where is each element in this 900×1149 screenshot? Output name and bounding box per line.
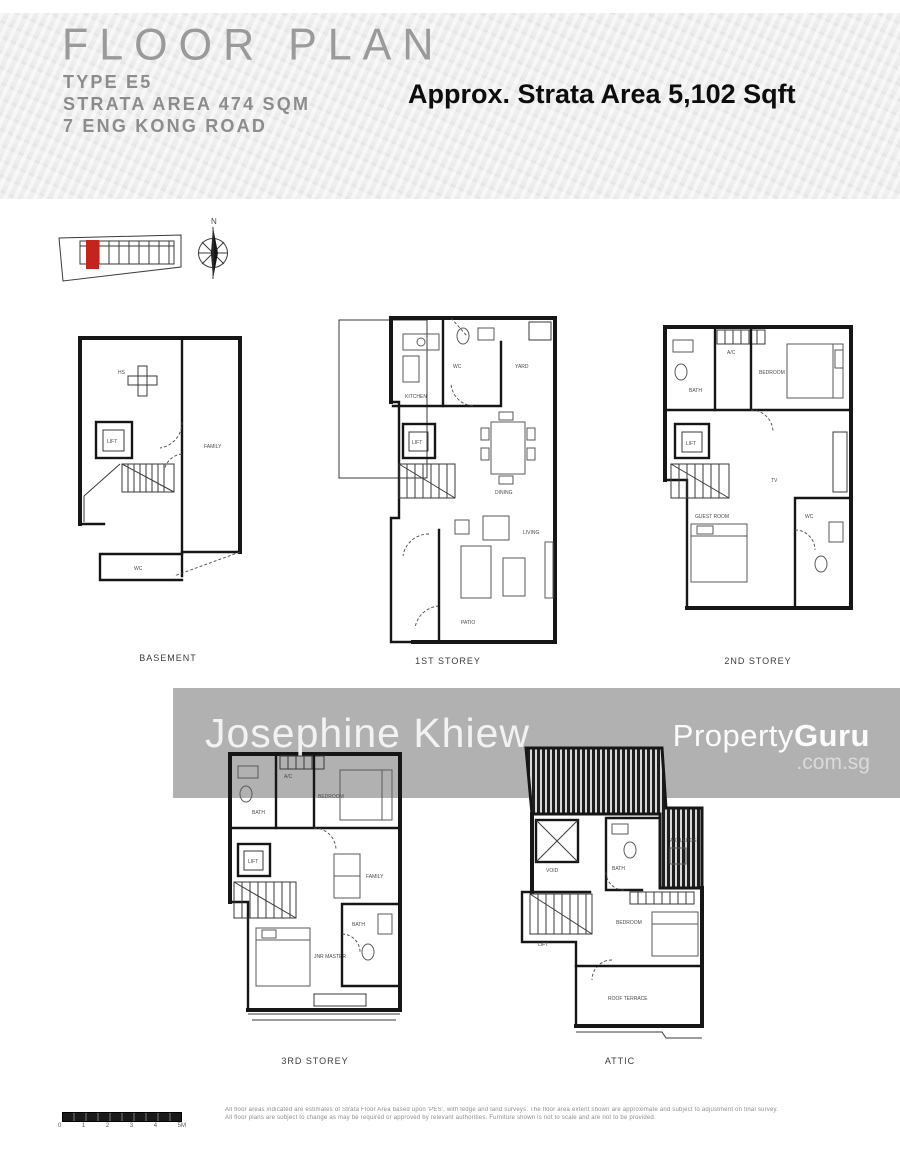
svg-text:LIFT: LIFT (248, 859, 258, 865)
svg-text:A/C: A/C (727, 350, 736, 356)
compass-needle (211, 227, 218, 279)
first-storey-caption: 1ST STOREY (378, 656, 518, 666)
compass-north-label: N (211, 217, 217, 226)
svg-text:FAMILY: FAMILY (366, 874, 384, 880)
second-storey-caption: 2ND STOREY (688, 656, 828, 666)
scale-tick: 0 (58, 1123, 61, 1129)
disclaimer-line-2: All floor plans are subject to change as… (225, 1114, 883, 1122)
svg-text:BEDROOM: BEDROOM (759, 370, 785, 376)
svg-text:LIFT: LIFT (412, 440, 422, 446)
svg-text:TV: TV (771, 478, 778, 484)
site-boundary (59, 235, 181, 281)
svg-text:LIFT: LIFT (107, 439, 117, 445)
page-title: FLOOR PLAN (62, 20, 444, 71)
first-storey-plan: KITCHEN WC YARD LIFT DINING LIVING (333, 306, 561, 650)
svg-text:LIVING: LIVING (523, 530, 540, 536)
svg-text:LIFT: LIFT (686, 441, 696, 447)
brand-watermark: PropertyGuru .com.sg (673, 718, 870, 775)
brand-domain: .com.sg (673, 751, 870, 775)
scale-tick: 2 (106, 1123, 109, 1129)
header-subtitle: TYPE E5 STRATA AREA 474 SQM 7 ENG KONG R… (63, 71, 310, 137)
floor-plan-page: FLOOR PLAN TYPE E5 STRATA AREA 474 SQM 7… (0, 0, 900, 1149)
svg-text:GUEST ROOM: GUEST ROOM (695, 514, 729, 520)
svg-text:KITCHEN: KITCHEN (405, 394, 427, 400)
svg-text:HS: HS (118, 370, 126, 376)
svg-text:LIFT: LIFT (538, 942, 548, 948)
scale-ticks: 0 1 2 3 4 5M (58, 1123, 186, 1129)
svg-text:WC: WC (134, 566, 143, 572)
third-storey-plan: BATH A/C BEDROOM LIFT FAMILY JNR MASTER (222, 742, 410, 1046)
svg-text:BEDROOM: BEDROOM (318, 794, 344, 800)
svg-text:FAMILY: FAMILY (204, 444, 222, 450)
scale-tick: 5M (178, 1123, 186, 1129)
basement-plan: HS LIFT FAMILY WC (70, 326, 254, 644)
brand-bold: Guru (794, 718, 870, 753)
scale-bar (62, 1112, 182, 1122)
highlighted-unit (86, 240, 99, 269)
strata-area-sqm: STRATA AREA 474 SQM (63, 93, 310, 115)
header-band: FLOOR PLAN TYPE E5 STRATA AREA 474 SQM 7… (0, 13, 900, 199)
unit-type: TYPE E5 (63, 71, 310, 93)
third-storey-caption: 3RD STOREY (245, 1056, 385, 1066)
approx-strata-area: Approx. Strata Area 5,102 Sqft (408, 79, 796, 110)
attic-plan: VOID LIFT BATH A/C LEDGE BEDROOM ROOF TE… (512, 742, 716, 1056)
agent-watermark: Josephine Khiew (205, 710, 530, 757)
svg-text:VOID: VOID (546, 868, 559, 874)
svg-text:ROOF TERRACE: ROOF TERRACE (608, 996, 648, 1002)
scale-tick: 1 (82, 1123, 85, 1129)
svg-text:A/C LEDGE: A/C LEDGE (670, 838, 697, 844)
svg-text:A/C: A/C (284, 774, 293, 780)
disclaimer-text: All floor areas indicated are estimates … (225, 1106, 883, 1122)
svg-text:DINING: DINING (495, 490, 513, 496)
svg-text:WC: WC (453, 364, 462, 370)
compass-icon: N (190, 213, 238, 287)
brand-light: Property (673, 718, 794, 753)
svg-text:BATH: BATH (252, 810, 265, 816)
attic-caption: ATTIC (550, 1056, 690, 1066)
svg-text:BATH: BATH (689, 388, 702, 394)
basement-caption: BASEMENT (98, 653, 238, 663)
second-storey-plan: BATH A/C BEDROOM TV LIFT GUEST ROOM (655, 312, 863, 644)
scale-tick: 3 (130, 1123, 133, 1129)
svg-text:BEDROOM: BEDROOM (616, 920, 642, 926)
site-plan-key (52, 222, 192, 290)
svg-text:PATIO: PATIO (461, 620, 475, 626)
svg-text:BATH: BATH (612, 866, 625, 872)
address: 7 ENG KONG ROAD (63, 115, 310, 137)
disclaimer-line-1: All floor areas indicated are estimates … (225, 1106, 883, 1114)
scale-tick: 4 (154, 1123, 157, 1129)
svg-text:BATH: BATH (352, 922, 365, 928)
svg-text:YARD: YARD (515, 364, 529, 370)
svg-text:WC: WC (805, 514, 814, 520)
